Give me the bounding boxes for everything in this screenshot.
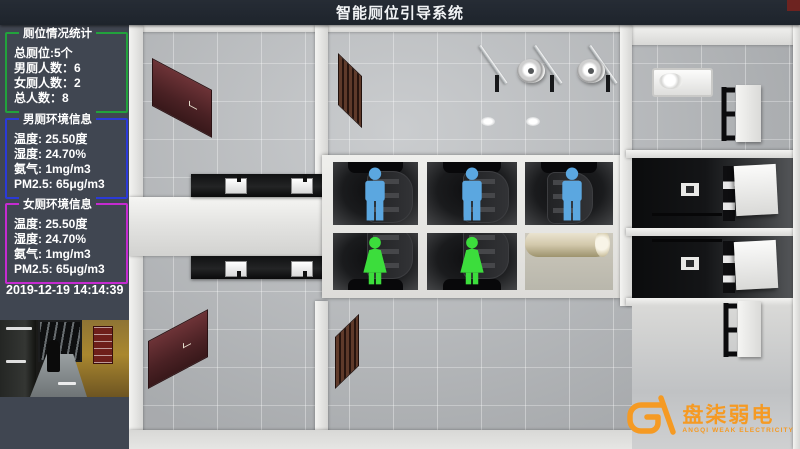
right-section-wall xyxy=(620,25,632,306)
wall-cabinet xyxy=(734,164,779,216)
vendor-logo-text: 盘柒弱电 ANGQI WEAK ELECTRICITY xyxy=(682,404,794,434)
right-edge-wall xyxy=(793,25,800,449)
supply-alcove xyxy=(525,233,613,290)
smart-toilet-dashboard: 智能厕位引导系统 厕位情况统计 总厕位:5个 男厕人数：6 女厕人数：2 总人数… xyxy=(0,0,800,449)
female-humidity: 湿度: 24.70% xyxy=(14,232,126,247)
female-count: 女厕人数：2 xyxy=(14,76,126,91)
floorplan-3d: 盘柒弱电 ANGQI WEAK ELECTRICITY xyxy=(129,25,800,449)
page-title: 智能厕位引导系统 xyxy=(336,2,464,23)
toilet-bowl xyxy=(659,73,683,89)
male-occupant-icon xyxy=(557,166,587,222)
cctv-person-silhouette xyxy=(47,340,60,372)
male-occupant-icon xyxy=(360,166,390,222)
door-handle xyxy=(189,101,197,110)
stall-stats-title: 厕位情况统计 xyxy=(19,25,96,41)
radiator-panel xyxy=(738,301,761,357)
stall-stats-panel: 厕位情况统计 总厕位:5个 男厕人数：6 女厕人数：2 总人数：8 xyxy=(5,32,128,113)
female-ammonia: 氨气: 1mg/m3 xyxy=(14,247,126,262)
cctv-osd-mark xyxy=(58,382,76,385)
urinal-divider-post xyxy=(495,75,499,92)
right-stall-wall-2 xyxy=(626,228,800,236)
faucet xyxy=(237,271,241,279)
faucet xyxy=(303,174,307,182)
squat-cistern xyxy=(681,257,699,270)
center-wall-band xyxy=(129,197,326,256)
male-temperature: 温度: 25.50度 xyxy=(14,132,126,147)
total-stalls: 总厕位:5个 xyxy=(14,46,126,61)
radiator-panel xyxy=(736,85,761,142)
sidebar: 厕位情况统计 总厕位:5个 男厕人数：6 女厕人数：2 总人数：8 男厕环境信息… xyxy=(0,25,129,449)
stall-male-3 xyxy=(525,162,613,225)
bottom-room-divider-wall xyxy=(315,301,328,433)
female-temperature: 温度: 25.50度 xyxy=(14,217,126,232)
cctv-osd-mark xyxy=(6,327,32,330)
stall-male-1 xyxy=(333,162,418,225)
cctv-left-wall xyxy=(0,320,36,397)
urinal xyxy=(517,59,545,83)
male-env-panel: 男厕环境信息 温度: 25.50度 湿度: 24.70% 氨气: 1mg/m3 … xyxy=(5,118,128,199)
door-handle xyxy=(183,339,191,348)
top-right-wall xyxy=(626,25,800,45)
ceiling-light xyxy=(481,117,495,126)
sink-counter-womens xyxy=(191,256,326,279)
faucet xyxy=(303,271,307,279)
right-stall-1 xyxy=(632,158,795,228)
radiator-icon xyxy=(720,85,738,143)
female-pm25: PM2.5: 65μg/m3 xyxy=(14,262,126,277)
female-occupant-icon xyxy=(359,236,391,286)
male-count: 男厕人数：6 xyxy=(14,61,126,76)
right-stall-wall-1 xyxy=(626,150,800,158)
ceiling-light xyxy=(526,117,540,126)
female-env-title: 女厕环境信息 xyxy=(19,196,96,212)
vendor-logo: 盘柒弱电 ANGQI WEAK ELECTRICITY xyxy=(620,395,794,443)
female-env-panel: 女厕环境信息 温度: 25.50度 湿度: 24.70% 氨气: 1mg/m3 … xyxy=(5,203,128,284)
male-pm25: PM2.5: 65μg/m3 xyxy=(14,177,126,192)
sink xyxy=(225,261,247,277)
squat-cistern xyxy=(681,183,699,196)
bottom-wall-band xyxy=(129,430,632,449)
sink xyxy=(291,178,313,194)
stall-block xyxy=(322,155,620,298)
total-count: 总人数：8 xyxy=(14,91,126,106)
wall-cabinet xyxy=(734,240,778,290)
urinal xyxy=(577,59,605,83)
right-stall-wall-3 xyxy=(626,298,800,306)
vendor-logo-icon xyxy=(620,395,678,443)
faucet xyxy=(237,174,241,182)
male-env-title: 男厕环境信息 xyxy=(19,111,96,127)
vendor-subtitle: ANGQI WEAK ELECTRICITY xyxy=(682,427,794,434)
stall-female-2 xyxy=(427,233,517,290)
right-stall-2 xyxy=(632,236,795,298)
urinal-divider-post xyxy=(606,75,610,92)
title-bar: 智能厕位引导系统 xyxy=(0,0,800,25)
corner-toilet xyxy=(652,68,713,97)
male-humidity: 湿度: 24.70% xyxy=(14,147,126,162)
pipe xyxy=(652,213,722,216)
female-occupant-icon xyxy=(456,236,488,286)
pipe xyxy=(652,239,722,242)
sink xyxy=(225,178,247,194)
cctv-osd-mark xyxy=(6,360,26,363)
urinal-divider-post xyxy=(550,75,554,92)
sink-counter-mens xyxy=(191,174,326,197)
stall-female-1 xyxy=(333,233,418,290)
vendor-name: 盘柒弱电 xyxy=(682,404,794,427)
stall-male-2 xyxy=(427,162,517,225)
corner-red-patch xyxy=(787,0,800,11)
cctv-thumbnail[interactable] xyxy=(0,320,129,397)
system-timestamp: 2019-12-19 14:14:39 xyxy=(6,283,123,297)
radiator-icon xyxy=(722,301,740,359)
paper-roll-end xyxy=(595,233,610,257)
male-ammonia: 氨气: 1mg/m3 xyxy=(14,162,126,177)
sink xyxy=(291,261,313,277)
cctv-poster xyxy=(93,326,113,364)
male-occupant-icon xyxy=(457,166,487,222)
